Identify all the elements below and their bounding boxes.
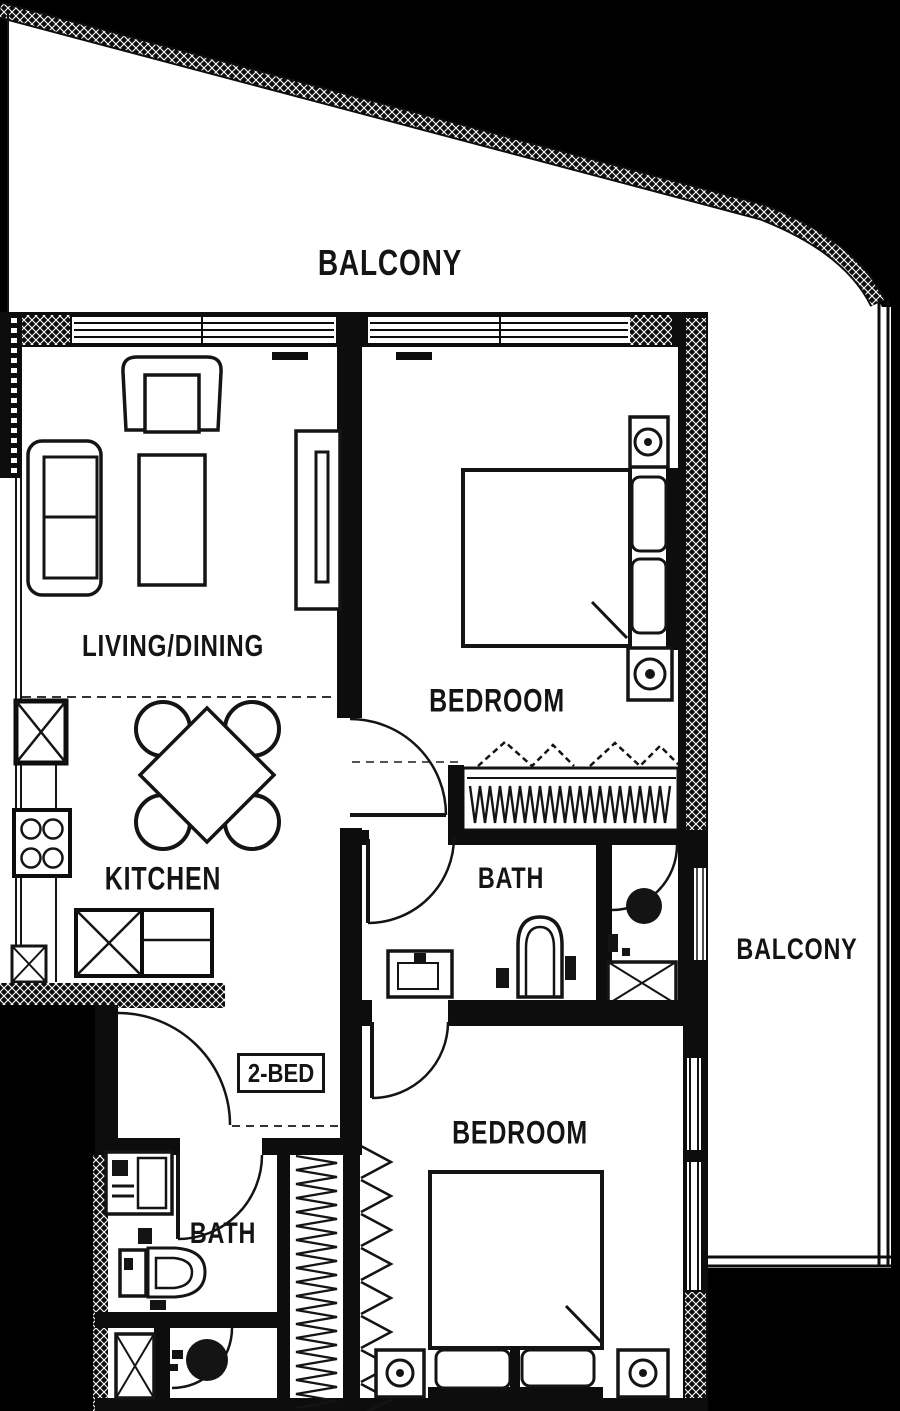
appliance-small bbox=[12, 946, 46, 982]
east-wall bbox=[678, 312, 708, 1010]
tv-unit bbox=[296, 431, 340, 609]
kitchen-lower-counter bbox=[76, 910, 212, 976]
kitchen-bottom-wall bbox=[0, 983, 225, 1008]
nightstand-top-1 bbox=[630, 417, 668, 467]
room-label-bath-middle: BATH bbox=[478, 862, 544, 896]
balcony-right-floor bbox=[703, 307, 891, 1268]
curtain-mark bbox=[272, 352, 308, 360]
room-label-bedroom-top: BEDROOM bbox=[429, 683, 565, 720]
nightstand-bottom-1 bbox=[376, 1350, 424, 1397]
room-label-bath-bottom: BATH bbox=[190, 1217, 256, 1251]
nightstand-bottom-2 bbox=[618, 1350, 668, 1397]
armchair bbox=[123, 357, 221, 432]
curtain-mark bbox=[396, 352, 432, 360]
room-label-kitchen: KITCHEN bbox=[105, 861, 221, 898]
unit-type-tag: 2-BED bbox=[237, 1053, 325, 1093]
room-label-living-dining: LIVING/DINING bbox=[82, 628, 264, 664]
room-label-balcony-right: BALCONY bbox=[736, 933, 857, 967]
room-label-balcony-top: BALCONY bbox=[318, 242, 462, 284]
vanity-middle bbox=[388, 951, 452, 997]
sofa bbox=[28, 441, 101, 595]
kitchen-sink bbox=[16, 701, 66, 763]
bed-top bbox=[463, 468, 680, 650]
dining-set bbox=[136, 702, 279, 849]
floor-plan: BALCONY LIVING/DINING BEDROOM KITCHEN BA… bbox=[0, 0, 900, 1411]
room-label-bedroom-bottom: BEDROOM bbox=[452, 1115, 588, 1152]
bedroom-bottom-east-wall bbox=[683, 1010, 708, 1411]
stove bbox=[14, 810, 70, 876]
bed-bottom bbox=[428, 1172, 603, 1398]
nightstand-top-2 bbox=[628, 648, 672, 700]
vanity-bottom bbox=[106, 1152, 172, 1214]
coffee-table bbox=[139, 455, 205, 585]
unit-type-label: 2-BED bbox=[248, 1058, 314, 1089]
